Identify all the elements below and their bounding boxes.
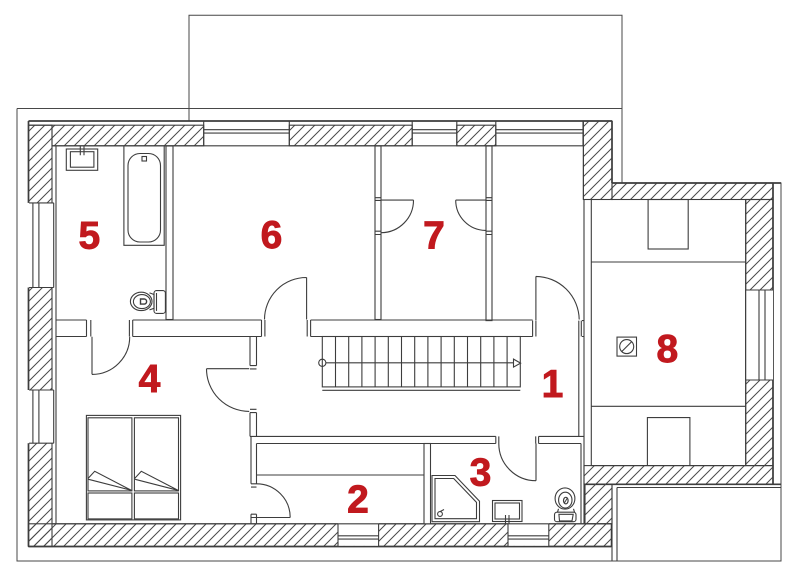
svg-text:7: 7 — [423, 215, 445, 258]
svg-text:3: 3 — [470, 452, 492, 495]
svg-text:8: 8 — [656, 328, 678, 371]
svg-text:2: 2 — [347, 479, 369, 522]
svg-text:1: 1 — [542, 363, 564, 406]
svg-text:5: 5 — [78, 215, 100, 258]
svg-text:6: 6 — [261, 214, 283, 257]
svg-text:4: 4 — [139, 358, 161, 401]
